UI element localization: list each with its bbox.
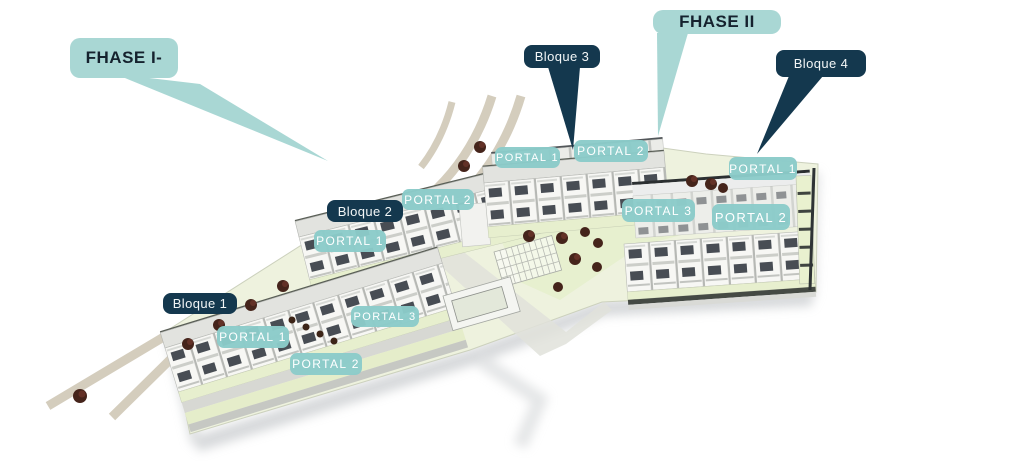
block-label-bloque-2[interactable]: Bloque 2 bbox=[327, 200, 403, 222]
site-plan-figure: FHASE I- FHASE II Bloque 1 Bloque 2 Bloq… bbox=[0, 0, 1024, 468]
fase2-tail bbox=[657, 33, 688, 136]
portal-label-bloque2-portal-1[interactable]: PORTAL 1 bbox=[314, 230, 386, 252]
road-stub bbox=[421, 102, 452, 167]
portal-label-bloque4-portal-1[interactable]: PORTAL 1 bbox=[729, 157, 797, 180]
building-bloque4 bbox=[624, 231, 816, 310]
block-label-bloque-3[interactable]: Bloque 3 bbox=[524, 45, 600, 68]
portal-label-bloque3-portal-1[interactable]: PORTAL 1 bbox=[495, 147, 560, 168]
block-label-bloque-4[interactable]: Bloque 4 bbox=[776, 50, 866, 77]
fase1-tail bbox=[115, 74, 328, 161]
portal-label-bloque4-portal-2[interactable]: PORTAL 2 bbox=[712, 204, 790, 230]
portal-label-bloque2-portal-2[interactable]: PORTAL 2 bbox=[402, 189, 474, 210]
portal-label-phase2-portal-3[interactable]: PORTAL 3 bbox=[622, 199, 695, 222]
portal-label-bloque1-portal-2[interactable]: PORTAL 2 bbox=[290, 353, 362, 375]
bloque3-tail bbox=[548, 67, 580, 150]
portal-label-bloque3-portal-2[interactable]: PORTAL 2 bbox=[574, 140, 648, 162]
portal-label-bloque1-portal-1[interactable]: PORTAL 1 bbox=[217, 326, 289, 348]
portal-label-bloque1-portal-3[interactable]: PORTAL 3 bbox=[351, 306, 419, 327]
phase-label-fhase-1: FHASE I- bbox=[70, 38, 178, 78]
block-label-bloque-1[interactable]: Bloque 1 bbox=[163, 293, 237, 314]
bloque4-tail bbox=[757, 76, 823, 154]
phase-label-fhase-2: FHASE II bbox=[653, 10, 781, 34]
